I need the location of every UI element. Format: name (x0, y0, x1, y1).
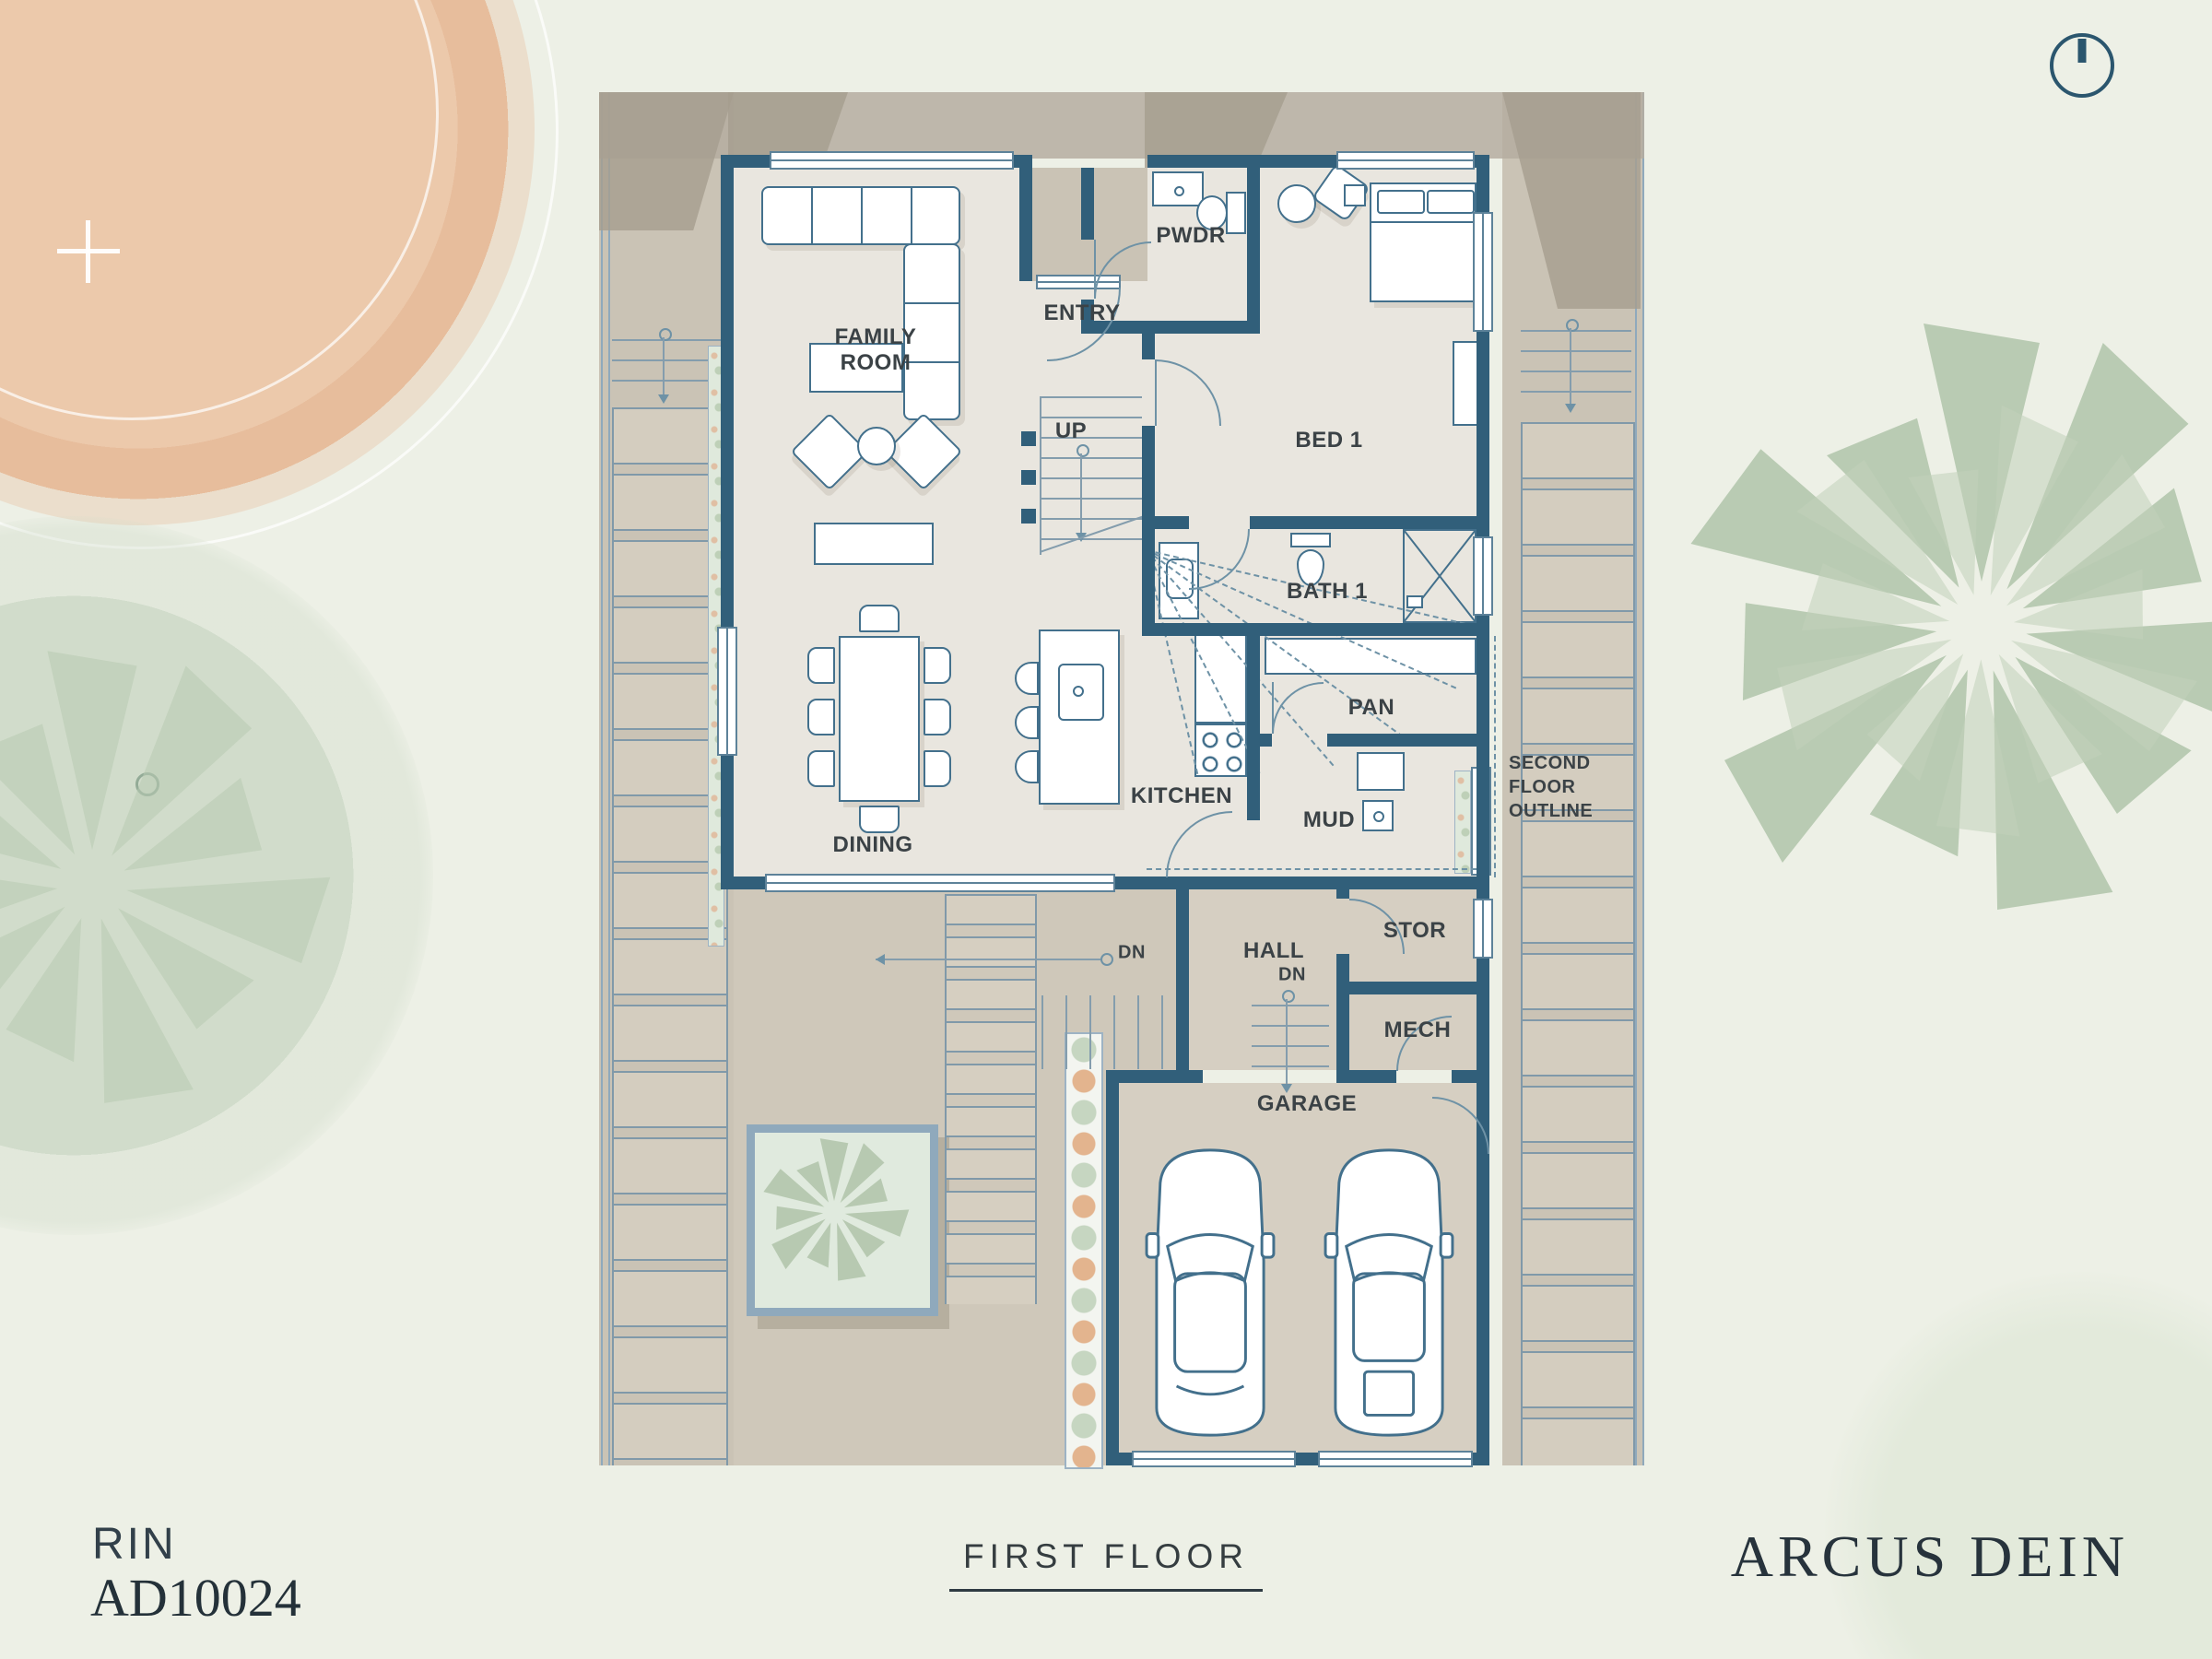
stair-label-dn: DN (1118, 943, 1146, 964)
stair-node (1566, 319, 1579, 332)
pwdr-faucet (1174, 186, 1184, 196)
stair-dn-garage (1252, 1005, 1329, 1069)
wall (721, 155, 734, 889)
bed (1370, 182, 1477, 302)
room-label-mech: MECH (1384, 1018, 1452, 1043)
bed-window (1336, 151, 1475, 170)
wall (1155, 516, 1189, 529)
bed-side-window (1473, 212, 1493, 332)
dining-chair (924, 699, 951, 735)
watercolor-sage-blob-2 (1825, 1272, 2212, 1659)
room-label-pan: PAN (1348, 695, 1394, 721)
shower-fixture (1406, 595, 1423, 608)
wall (1336, 889, 1349, 899)
wall (1327, 734, 1489, 747)
mud-counter (1357, 752, 1405, 791)
wall (1019, 155, 1032, 281)
stair-node (1100, 953, 1113, 966)
right-deck-stairs (1521, 330, 1631, 411)
garage-door (1132, 1451, 1296, 1467)
kitchen-counter (1194, 629, 1247, 724)
stair-node (1282, 990, 1295, 1003)
wall (1247, 636, 1260, 820)
bedroom-chair (1277, 184, 1316, 223)
stair-node (659, 328, 672, 341)
mud-planter (1454, 771, 1471, 874)
wall (1477, 155, 1489, 1465)
room-label-mud: MUD (1303, 807, 1355, 833)
floor-plan: FAMILY ROOM ENTRY PWDR BED 1 UP BATH 1 P… (599, 83, 1650, 1475)
porch-column (1021, 431, 1036, 446)
plan-name: RIN (92, 1519, 177, 1570)
down-arrow-icon (658, 394, 669, 404)
porch-column (1021, 509, 1036, 524)
stair-guide (1570, 328, 1571, 404)
dining-table (839, 636, 920, 802)
room-label-bed1: BED 1 (1295, 428, 1362, 453)
room-label-kitchen: KITCHEN (1131, 783, 1232, 809)
room-label-garage: GARAGE (1257, 1091, 1357, 1117)
room-label-hall: HALL (1243, 938, 1304, 964)
wall (1142, 623, 1489, 636)
garage-door (1318, 1451, 1473, 1467)
plus-mark (86, 220, 90, 283)
stair-guide (1080, 453, 1082, 533)
stair-dn-courtyard (1041, 995, 1171, 1069)
wall (1336, 1070, 1396, 1083)
dining-chair (859, 605, 900, 632)
island-faucet (1073, 686, 1084, 697)
dining-chair (807, 750, 835, 787)
annotation-second-floor-outline: SECOND FLOOR OUTLINE (1509, 751, 1629, 823)
pebble-strip (1065, 1032, 1103, 1469)
stor-window (1473, 899, 1493, 959)
stair-label-up: UP (1055, 418, 1087, 444)
wall (1452, 1070, 1489, 1083)
media-console (814, 523, 934, 565)
down-arrow-icon (1565, 404, 1576, 413)
dining-window (717, 627, 737, 756)
dining-chair (924, 750, 951, 787)
dining-chair (807, 699, 835, 735)
side-table (857, 427, 896, 465)
patio-slider (765, 874, 1115, 892)
car (1141, 1143, 1279, 1442)
room-label-entry: ENTRY (1044, 300, 1121, 326)
tree-icon (0, 636, 341, 1134)
stair-node (1077, 444, 1089, 457)
door-leaf (1155, 359, 1157, 426)
porch-column (1021, 470, 1036, 485)
wall (1250, 516, 1489, 529)
left-deck-rail (601, 92, 610, 1465)
north-tick (2078, 39, 2087, 63)
sofa-sectional-back (761, 186, 960, 245)
room-label-dining: DINING (833, 832, 913, 858)
right-deck-planks (1521, 422, 1635, 1465)
room-label-family: FAMILY ROOM (797, 324, 954, 376)
wall (1247, 734, 1272, 747)
wall (1247, 155, 1260, 321)
wall (1176, 889, 1189, 1070)
door-leaf (1094, 240, 1096, 299)
family-window (770, 151, 1014, 170)
wall (1336, 954, 1349, 1083)
pantry-counter (1265, 638, 1477, 675)
wall (1106, 1070, 1119, 1465)
room-label-bath1: BATH 1 (1287, 579, 1368, 605)
stair-guide (1286, 999, 1288, 1084)
dining-chair (859, 806, 900, 833)
north-indicator-icon (2050, 33, 2114, 98)
shower (1403, 529, 1477, 623)
wall (1081, 168, 1094, 240)
room-label-pwdr: PWDR (1156, 223, 1225, 249)
floor-title: FIRST FLOOR (949, 1537, 1263, 1592)
wall (1106, 1070, 1203, 1083)
left-arrow-icon (876, 954, 885, 965)
wall (1142, 334, 1155, 359)
brand-logo: ARCUS DEIN (1668, 1523, 2129, 1591)
nightstand (1344, 184, 1366, 206)
second-floor-outline-line (1494, 636, 1496, 877)
bath-window (1473, 536, 1493, 616)
car (1320, 1143, 1458, 1442)
dining-chair (924, 647, 951, 684)
stair-guide (663, 337, 665, 394)
toilet-tank (1226, 192, 1246, 234)
wall (1142, 426, 1155, 516)
tree-icon (1659, 304, 2212, 949)
plan-code: AD10024 (90, 1567, 301, 1629)
dining-chair (807, 647, 835, 684)
dresser (1453, 341, 1478, 426)
stair-label-dn: DN (1278, 965, 1306, 986)
toilet-tank (1290, 533, 1331, 547)
stair-guide (876, 959, 1100, 960)
stair-edge (1040, 396, 1041, 555)
mud-basin (1362, 800, 1394, 831)
room-label-stor: STOR (1383, 918, 1446, 944)
door-leaf (1272, 682, 1274, 734)
wall (1142, 516, 1155, 636)
floorplan-page: FAMILY ROOM ENTRY PWDR BED 1 UP BATH 1 P… (0, 0, 2212, 1659)
courtyard-plank-path (945, 894, 1037, 1304)
wall (1349, 982, 1489, 994)
planter-tree-icon (756, 1134, 912, 1290)
